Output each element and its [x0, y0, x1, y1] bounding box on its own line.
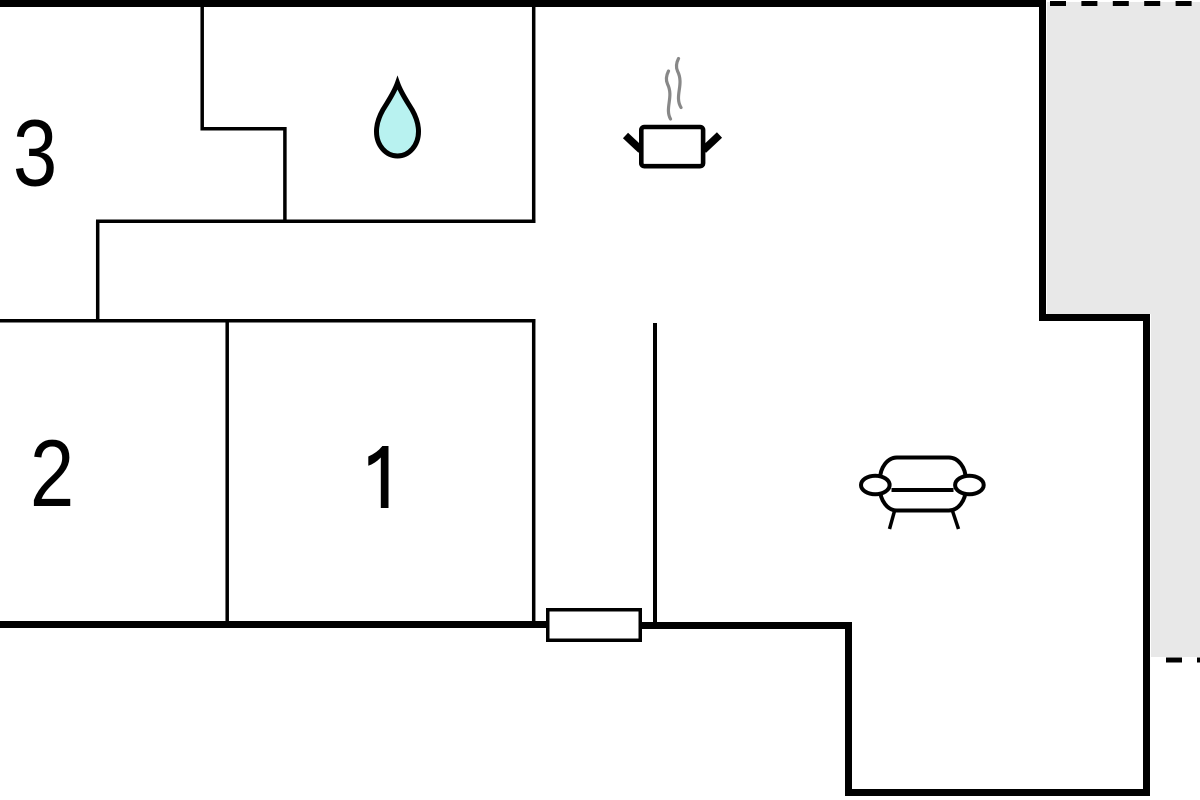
- svg-text:3: 3: [13, 100, 57, 206]
- svg-text:2: 2: [30, 420, 74, 526]
